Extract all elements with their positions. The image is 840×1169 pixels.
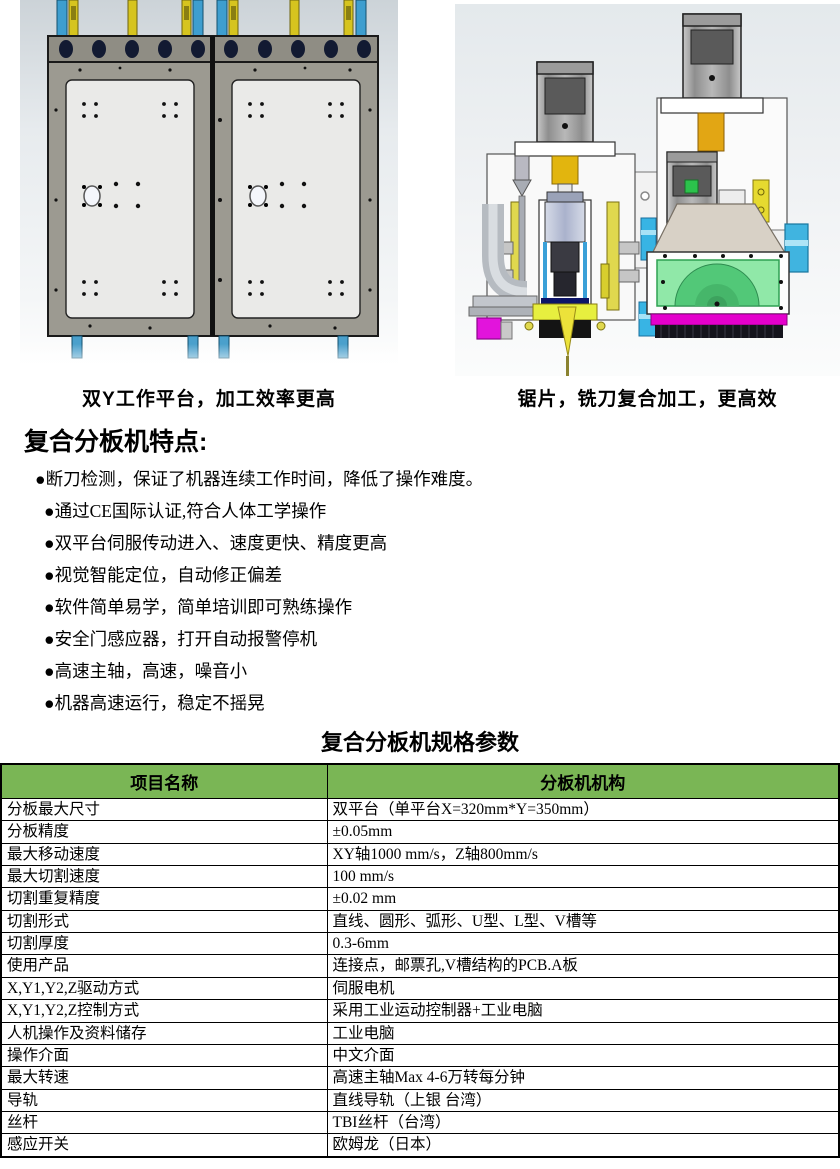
spec-name: 感应开关 — [1, 1134, 327, 1157]
product-sheet: 双Y工作平台，加工效率更高 锯片，铣刀复合加工，更高效 复合分板机特点: ●断刀… — [0, 0, 840, 1169]
spec-table-title: 复合分板机规格参数 — [0, 725, 840, 757]
spec-name: 切割厚度 — [1, 933, 327, 955]
spec-name: 分板最大尺寸 — [1, 798, 327, 820]
saw-mill-spindle-image — [455, 4, 840, 376]
spec-name: X,Y1,Y2,Z驱动方式 — [1, 977, 327, 999]
table-row: 最大切割速度100 mm/s — [1, 865, 839, 887]
feature-item: ●机器高速运行，稳定不摇晃 — [44, 693, 840, 714]
spec-name: 最大切割速度 — [1, 865, 327, 887]
table-row: 丝杆TBI丝杆（台湾） — [1, 1112, 839, 1134]
dual-y-platform-svg — [20, 0, 398, 372]
spec-value: 直线导轨（上银 台湾） — [327, 1089, 839, 1111]
spec-value: 双平台（单平台X=320mm*Y=350mm） — [327, 798, 839, 820]
feature-item: ●安全门感应器，打开自动报警停机 — [44, 629, 840, 650]
spec-value: 高速主轴Max 4-6万转每分钟 — [327, 1067, 839, 1089]
feature-item: ●通过CE国际认证,符合人体工学操作 — [44, 501, 840, 522]
spec-name: 最大转速 — [1, 1067, 327, 1089]
spec-name: 分板精度 — [1, 821, 327, 843]
spec-value: 直线、圆形、弧形、U型、L型、V槽等 — [327, 910, 839, 932]
spec-value: 工业电脑 — [327, 1022, 839, 1044]
features-list: ●断刀检测，保证了机器连续工作时间，降低了操作难度。 ●通过CE国际认证,符合人… — [0, 469, 840, 714]
table-row: 最大移动速度XY轴1000 mm/s，Z轴800mm/s — [1, 843, 839, 865]
table-row: 最大转速高速主轴Max 4-6万转每分钟 — [1, 1067, 839, 1089]
saw-mill-spindle-svg — [455, 4, 840, 376]
spec-value: 采用工业运动控制器+工业电脑 — [327, 1000, 839, 1022]
table-row: X,Y1,Y2,Z驱动方式伺服电机 — [1, 977, 839, 999]
table-row: 操作介面中文介面 — [1, 1044, 839, 1066]
spec-value: 中文介面 — [327, 1044, 839, 1066]
spec-name: 导轨 — [1, 1089, 327, 1111]
spec-value: ±0.05mm — [327, 821, 839, 843]
spec-name: X,Y1,Y2,Z控制方式 — [1, 1000, 327, 1022]
table-row: 切割厚度0.3-6mm — [1, 933, 839, 955]
feature-item: ●视觉智能定位，自动修正偏差 — [44, 565, 840, 586]
table-row: X,Y1,Y2,Z控制方式采用工业运动控制器+工业电脑 — [1, 1000, 839, 1022]
table-row: 分板最大尺寸双平台（单平台X=320mm*Y=350mm） — [1, 798, 839, 820]
feature-item: ●断刀检测，保证了机器连续工作时间，降低了操作难度。 — [35, 469, 840, 490]
spec-value: XY轴1000 mm/s，Z轴800mm/s — [327, 843, 839, 865]
table-row: 导轨直线导轨（上银 台湾） — [1, 1089, 839, 1111]
spec-name: 操作介面 — [1, 1044, 327, 1066]
spec-value: 0.3-6mm — [327, 933, 839, 955]
feature-item: ●双平台伺服传动进入、速度更快、精度更高 — [44, 533, 840, 554]
spec-value: 伺服电机 — [327, 977, 839, 999]
spec-value: TBI丝杆（台湾） — [327, 1112, 839, 1134]
left-figure-caption: 双Y工作平台，加工效率更高 — [20, 384, 398, 411]
spec-value: 100 mm/s — [327, 865, 839, 887]
table-row: 人机操作及资料储存工业电脑 — [1, 1022, 839, 1044]
table-row: 使用产品连接点，邮票孔,V槽结构的PCB.A板 — [1, 955, 839, 977]
table-row: 分板精度±0.05mm — [1, 821, 839, 843]
spec-name: 切割形式 — [1, 910, 327, 932]
spec-value: 连接点，邮票孔,V槽结构的PCB.A板 — [327, 955, 839, 977]
spec-name: 使用产品 — [1, 955, 327, 977]
right-figure-caption: 锯片，铣刀复合加工，更高效 — [455, 384, 840, 411]
table-row: 切割重复精度±0.02 mm — [1, 888, 839, 910]
feature-item: ●高速主轴，高速，噪音小 — [44, 661, 840, 682]
spec-name: 切割重复精度 — [1, 888, 327, 910]
spec-value: 欧姆龙（日本） — [327, 1134, 839, 1157]
spec-table: 项目名称 分板机机构 分板最大尺寸双平台（单平台X=320mm*Y=350mm）… — [0, 763, 840, 1158]
table-row: 感应开关欧姆龙（日本） — [1, 1134, 839, 1157]
spec-name: 丝杆 — [1, 1112, 327, 1134]
spec-name: 最大移动速度 — [1, 843, 327, 865]
figures-row: 双Y工作平台，加工效率更高 锯片，铣刀复合加工，更高效 — [0, 0, 840, 412]
table-row: 切割形式直线、圆形、弧形、U型、L型、V槽等 — [1, 910, 839, 932]
spec-value: ±0.02 mm — [327, 888, 839, 910]
dual-y-platform-image — [20, 0, 398, 372]
spec-header-name: 项目名称 — [1, 764, 327, 799]
features-title: 复合分板机特点: — [24, 428, 840, 457]
spec-header-structure: 分板机机构 — [327, 764, 839, 799]
spec-name: 人机操作及资料储存 — [1, 1022, 327, 1044]
spec-header-row: 项目名称 分板机机构 — [1, 764, 839, 799]
feature-item: ●软件简单易学，简单培训即可熟练操作 — [44, 597, 840, 618]
